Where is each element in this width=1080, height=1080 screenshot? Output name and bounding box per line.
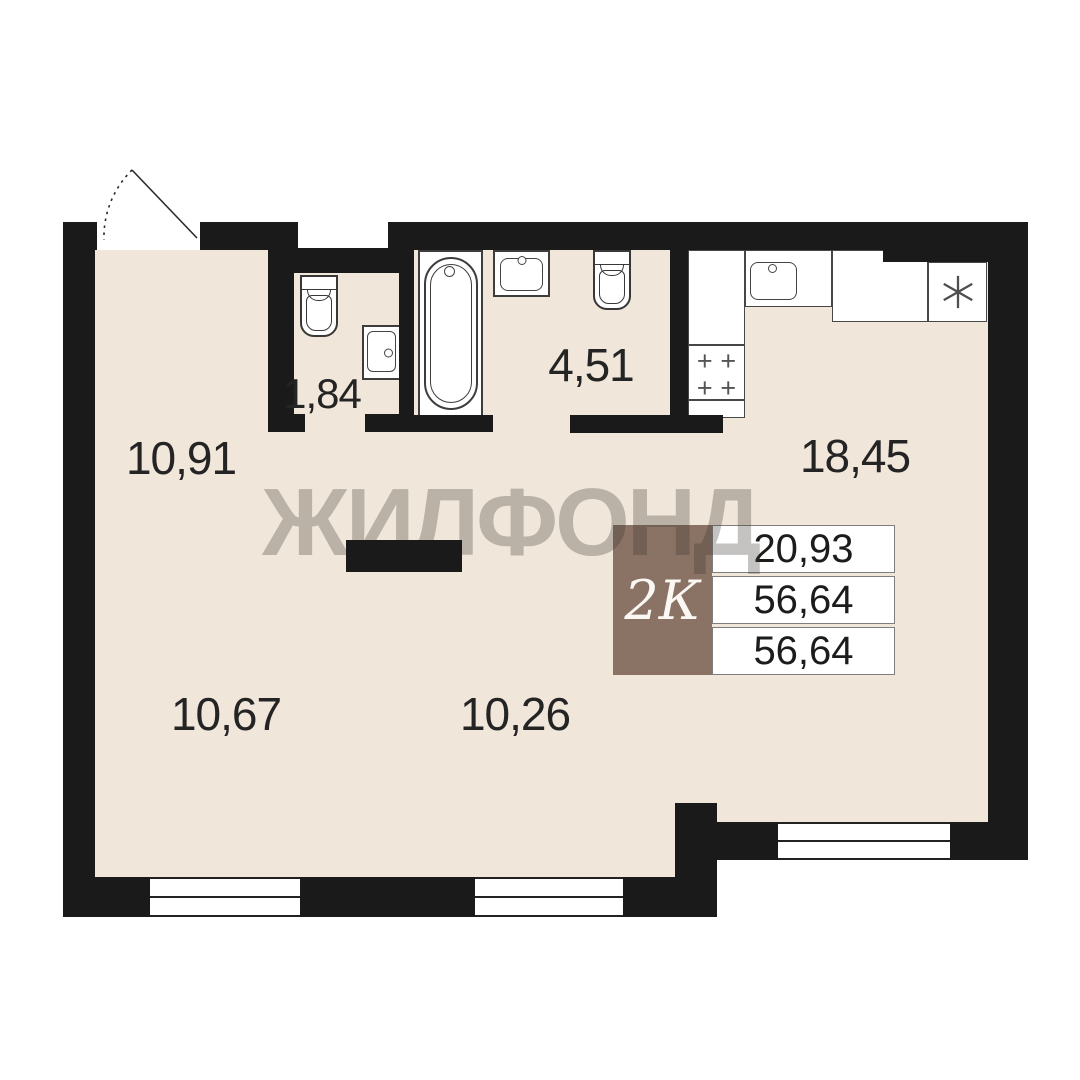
- wall-bath-bottom: [570, 415, 723, 433]
- stove-burner-icon: +: [697, 375, 713, 402]
- stove-burner-icon: +: [720, 348, 736, 375]
- room-label-room-left: 10,67: [171, 687, 281, 741]
- door-swing-arc-icon: [90, 160, 205, 250]
- stove-icon: + + + +: [688, 345, 745, 400]
- room-label-hallway: 10,91: [126, 431, 236, 485]
- toilet-bowl-icon: [306, 295, 332, 331]
- floor-plan: + + + + 2К 20,93 56,64 56,64 ЖИЛФОНД: [0, 0, 1080, 1080]
- stove-burner-icon: +: [697, 348, 713, 375]
- window-pane-line: [475, 896, 623, 898]
- fridge-icon: [928, 262, 987, 322]
- toilet-icon: [593, 250, 631, 310]
- fridge-asterisk-icon: [939, 273, 977, 311]
- kitchen-sink-counter: [745, 250, 832, 307]
- wall-bath-bottom: [399, 415, 493, 432]
- bathtub-drain-icon: [444, 266, 455, 277]
- wall-niche: [298, 213, 388, 248]
- stove-burner-icon: +: [720, 375, 736, 402]
- window-icon: [778, 822, 950, 860]
- toilet-icon: [300, 275, 338, 337]
- watermark: ЖИЛФОНД: [262, 468, 758, 578]
- kitchen-counter: [688, 250, 745, 345]
- window-pane-line: [778, 840, 950, 842]
- wall-top-right: [883, 222, 988, 262]
- room-label-bathroom: 4,51: [548, 338, 634, 392]
- room-label-wc: 1,84: [283, 370, 361, 418]
- wall-kitchen-partition: [670, 222, 688, 433]
- window-icon: [475, 877, 623, 917]
- sink-faucet-icon: [517, 256, 526, 265]
- window-icon: [150, 877, 300, 917]
- sink-icon: [362, 325, 401, 380]
- sink-icon: [493, 250, 550, 297]
- kitchen-sink-faucet-icon: [768, 264, 777, 273]
- window-pane-line: [150, 896, 300, 898]
- sink-faucet-icon: [384, 348, 393, 357]
- wall-left: [63, 222, 95, 917]
- wall-right: [988, 222, 1028, 860]
- wall-stub-living: [346, 540, 462, 572]
- area-row-total: 56,64: [712, 576, 895, 624]
- toilet-bowl-icon: [599, 270, 625, 304]
- room-label-kitchen-living: 18,45: [800, 429, 910, 483]
- wall-step: [675, 803, 717, 917]
- wall-wc-bath: [399, 222, 414, 432]
- area-row-overall: 56,64: [712, 627, 895, 675]
- bathtub-inner-icon: [430, 264, 472, 403]
- room-label-room-middle: 10,26: [460, 687, 570, 741]
